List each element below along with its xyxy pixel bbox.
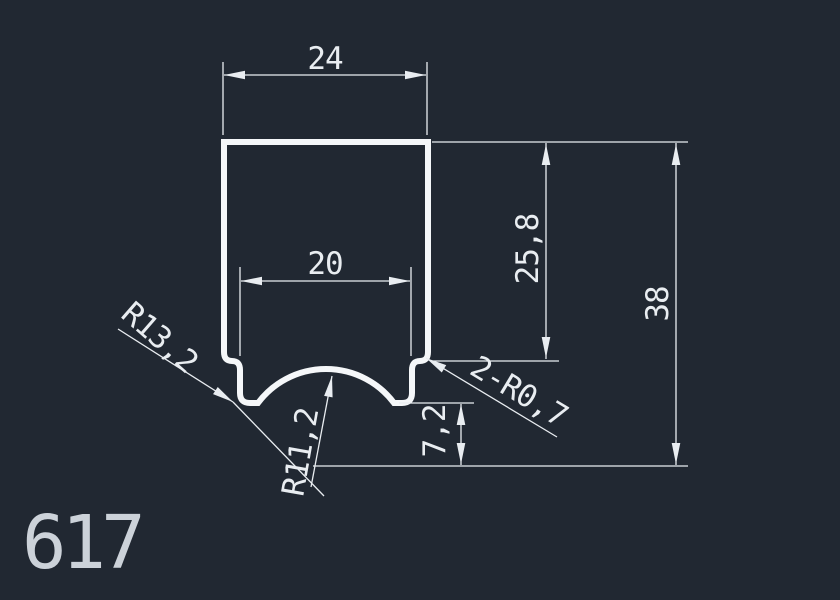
dim-text-overall-width: 24: [307, 41, 343, 77]
arrowhead-width24-left: [224, 71, 245, 80]
dim-text-overall-height: 38: [640, 286, 676, 321]
arrowhead-height38-top: [672, 144, 681, 165]
part-number: 617: [22, 500, 141, 586]
arrowhead-width24-right: [405, 71, 426, 80]
arrowhead-width20-right: [389, 277, 410, 286]
dim-text-lip-offset: 7,2: [417, 405, 453, 458]
arrowhead-depth258-bottom: [542, 337, 551, 358]
dim-text-radius-outer: R13,2: [114, 295, 204, 380]
arrowhead-r112: [324, 375, 336, 397]
dim-text-fillets: 2-R0,7: [464, 349, 573, 434]
arrowhead-lip72-top: [457, 404, 466, 425]
arrowhead-r132: [213, 387, 235, 406]
dim-text-opening-width: 20: [307, 246, 342, 282]
arrowhead-depth258-top: [542, 144, 551, 165]
drawing-canvas: 24 20 25,8 38 7,2 R13,2 R11,2 2-R0,7 617: [0, 0, 840, 600]
dim-text-depth-to-step: 25,8: [510, 214, 546, 285]
dim-text-radius-groove: R11,2: [275, 406, 326, 499]
arrowhead-lip72-bottom: [457, 443, 466, 464]
arrowhead-height38-bottom: [672, 443, 681, 464]
arrowhead-width20-left: [241, 277, 262, 286]
cad-viewport: 24 20 25,8 38 7,2 R13,2 R11,2 2-R0,7 617: [0, 0, 840, 600]
